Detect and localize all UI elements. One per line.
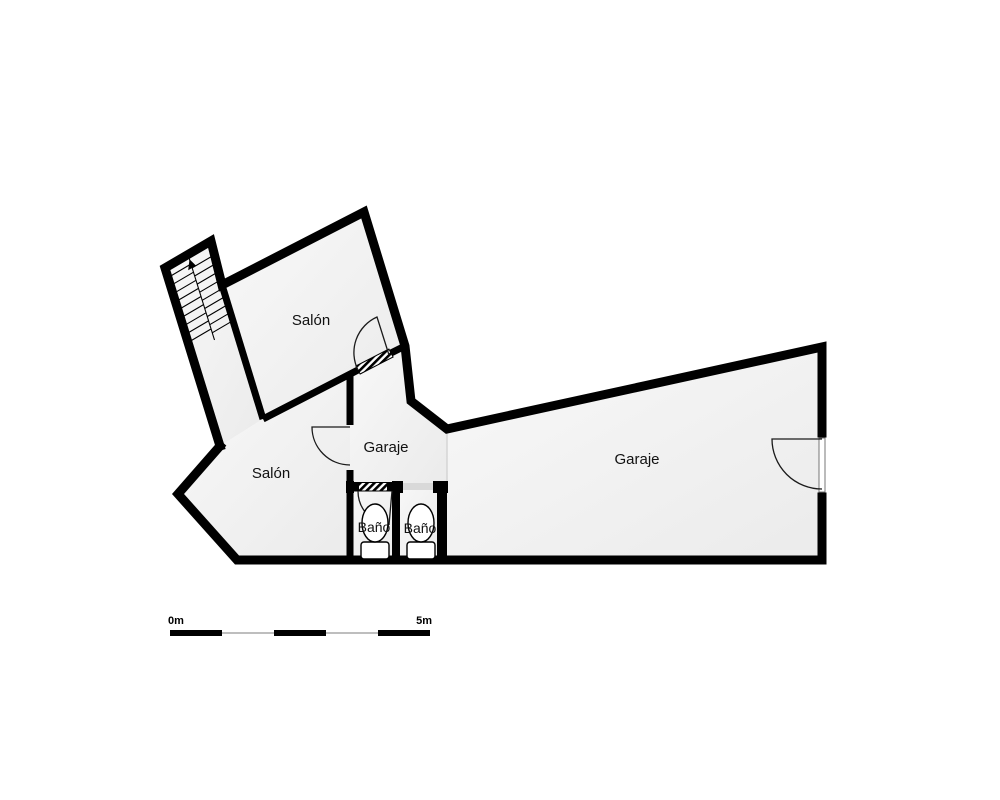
room-label-garaje-small: Garaje	[363, 439, 408, 456]
room-label-salon-upper: Salón	[292, 312, 330, 329]
door-sill-jamb-left	[354, 483, 359, 492]
scale-segment-3	[274, 630, 326, 636]
floor-plan-canvas: Salón Salón Garaje Garaje Baño Baño 0m 5…	[0, 0, 1000, 800]
room-label-garaje-large: Garaje	[614, 451, 659, 468]
room-label-bano-left: Baño	[358, 519, 391, 535]
scale-end-label: 5m	[416, 615, 432, 627]
scale-start-label: 0m	[168, 615, 184, 627]
room-label-salon-lower: Salón	[252, 465, 290, 482]
scale-segment-1	[170, 630, 222, 636]
room-label-bano-right: Baño	[404, 520, 437, 536]
door-opening-bano-right	[403, 483, 433, 490]
scale-segment-5	[378, 630, 430, 636]
scale-bar: 0m 5m	[168, 615, 432, 636]
door-sill-jamb-right	[387, 483, 392, 492]
door-frame-garaje-large	[819, 438, 825, 492]
door-sill-bano-left	[354, 483, 392, 492]
floor-plan-page: Salón Salón Garaje Garaje Baño Baño 0m 5…	[0, 0, 1000, 800]
